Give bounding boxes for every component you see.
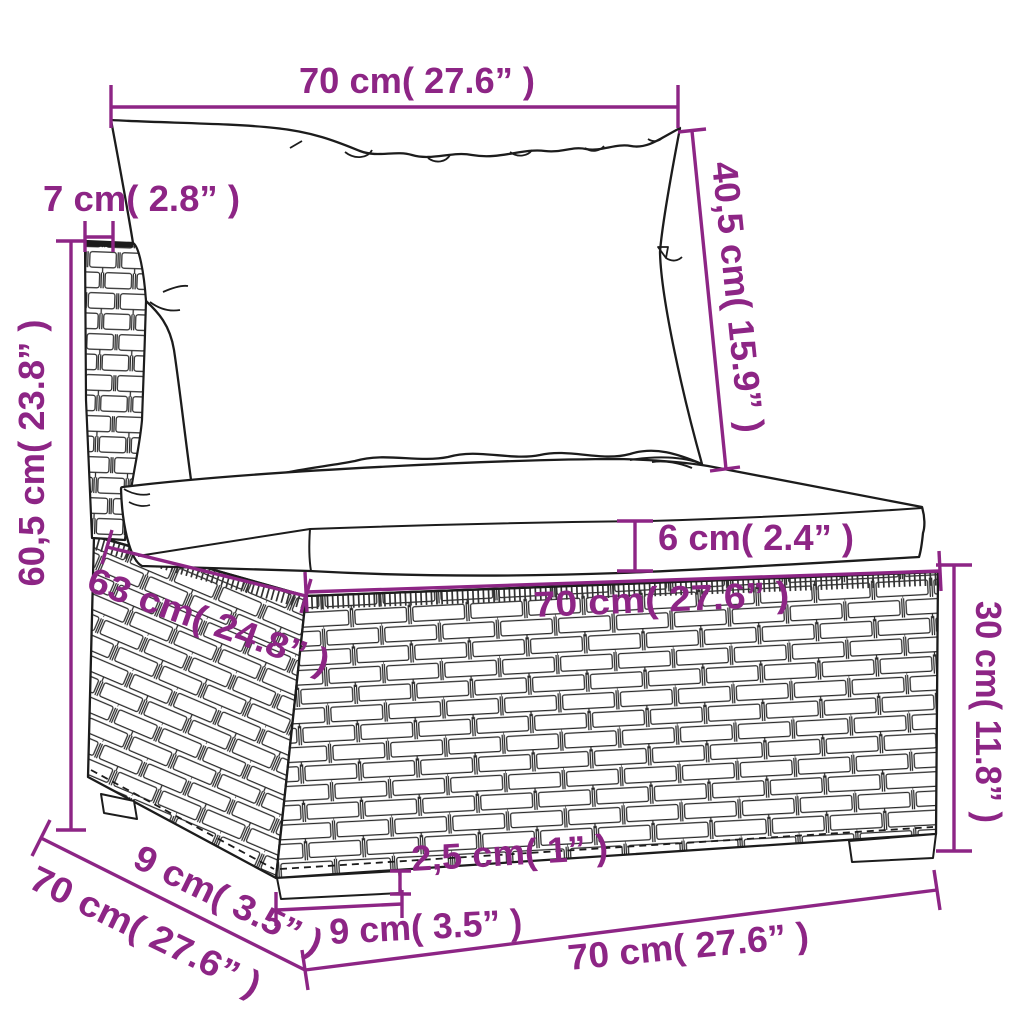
svg-text:30 cm( 11.8” ): 30 cm( 11.8” ) [968, 601, 1009, 823]
svg-text:6 cm( 2.4” ): 6 cm( 2.4” ) [658, 517, 854, 558]
svg-text:70 cm( 27.6” ): 70 cm( 27.6” ) [299, 60, 535, 101]
svg-text:60,5 cm( 23.8” ): 60,5 cm( 23.8” ) [11, 320, 52, 587]
svg-text:7 cm( 2.8” ): 7 cm( 2.8” ) [43, 178, 240, 219]
